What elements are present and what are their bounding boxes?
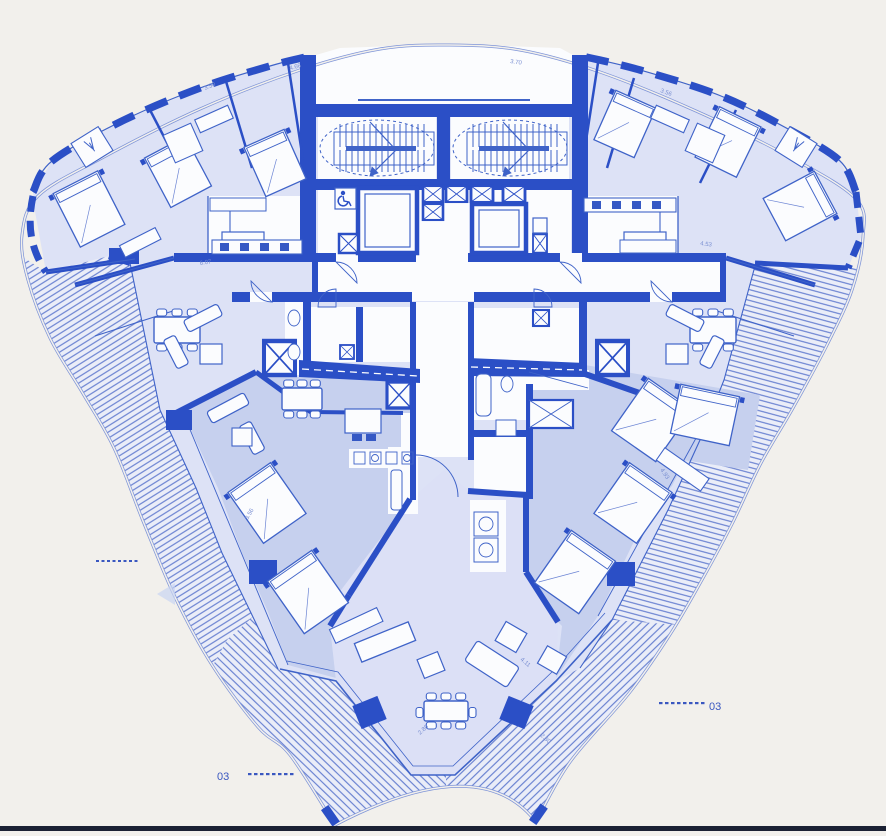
svg-text:03: 03 bbox=[709, 701, 721, 713]
svg-text:03: 03 bbox=[217, 771, 229, 783]
